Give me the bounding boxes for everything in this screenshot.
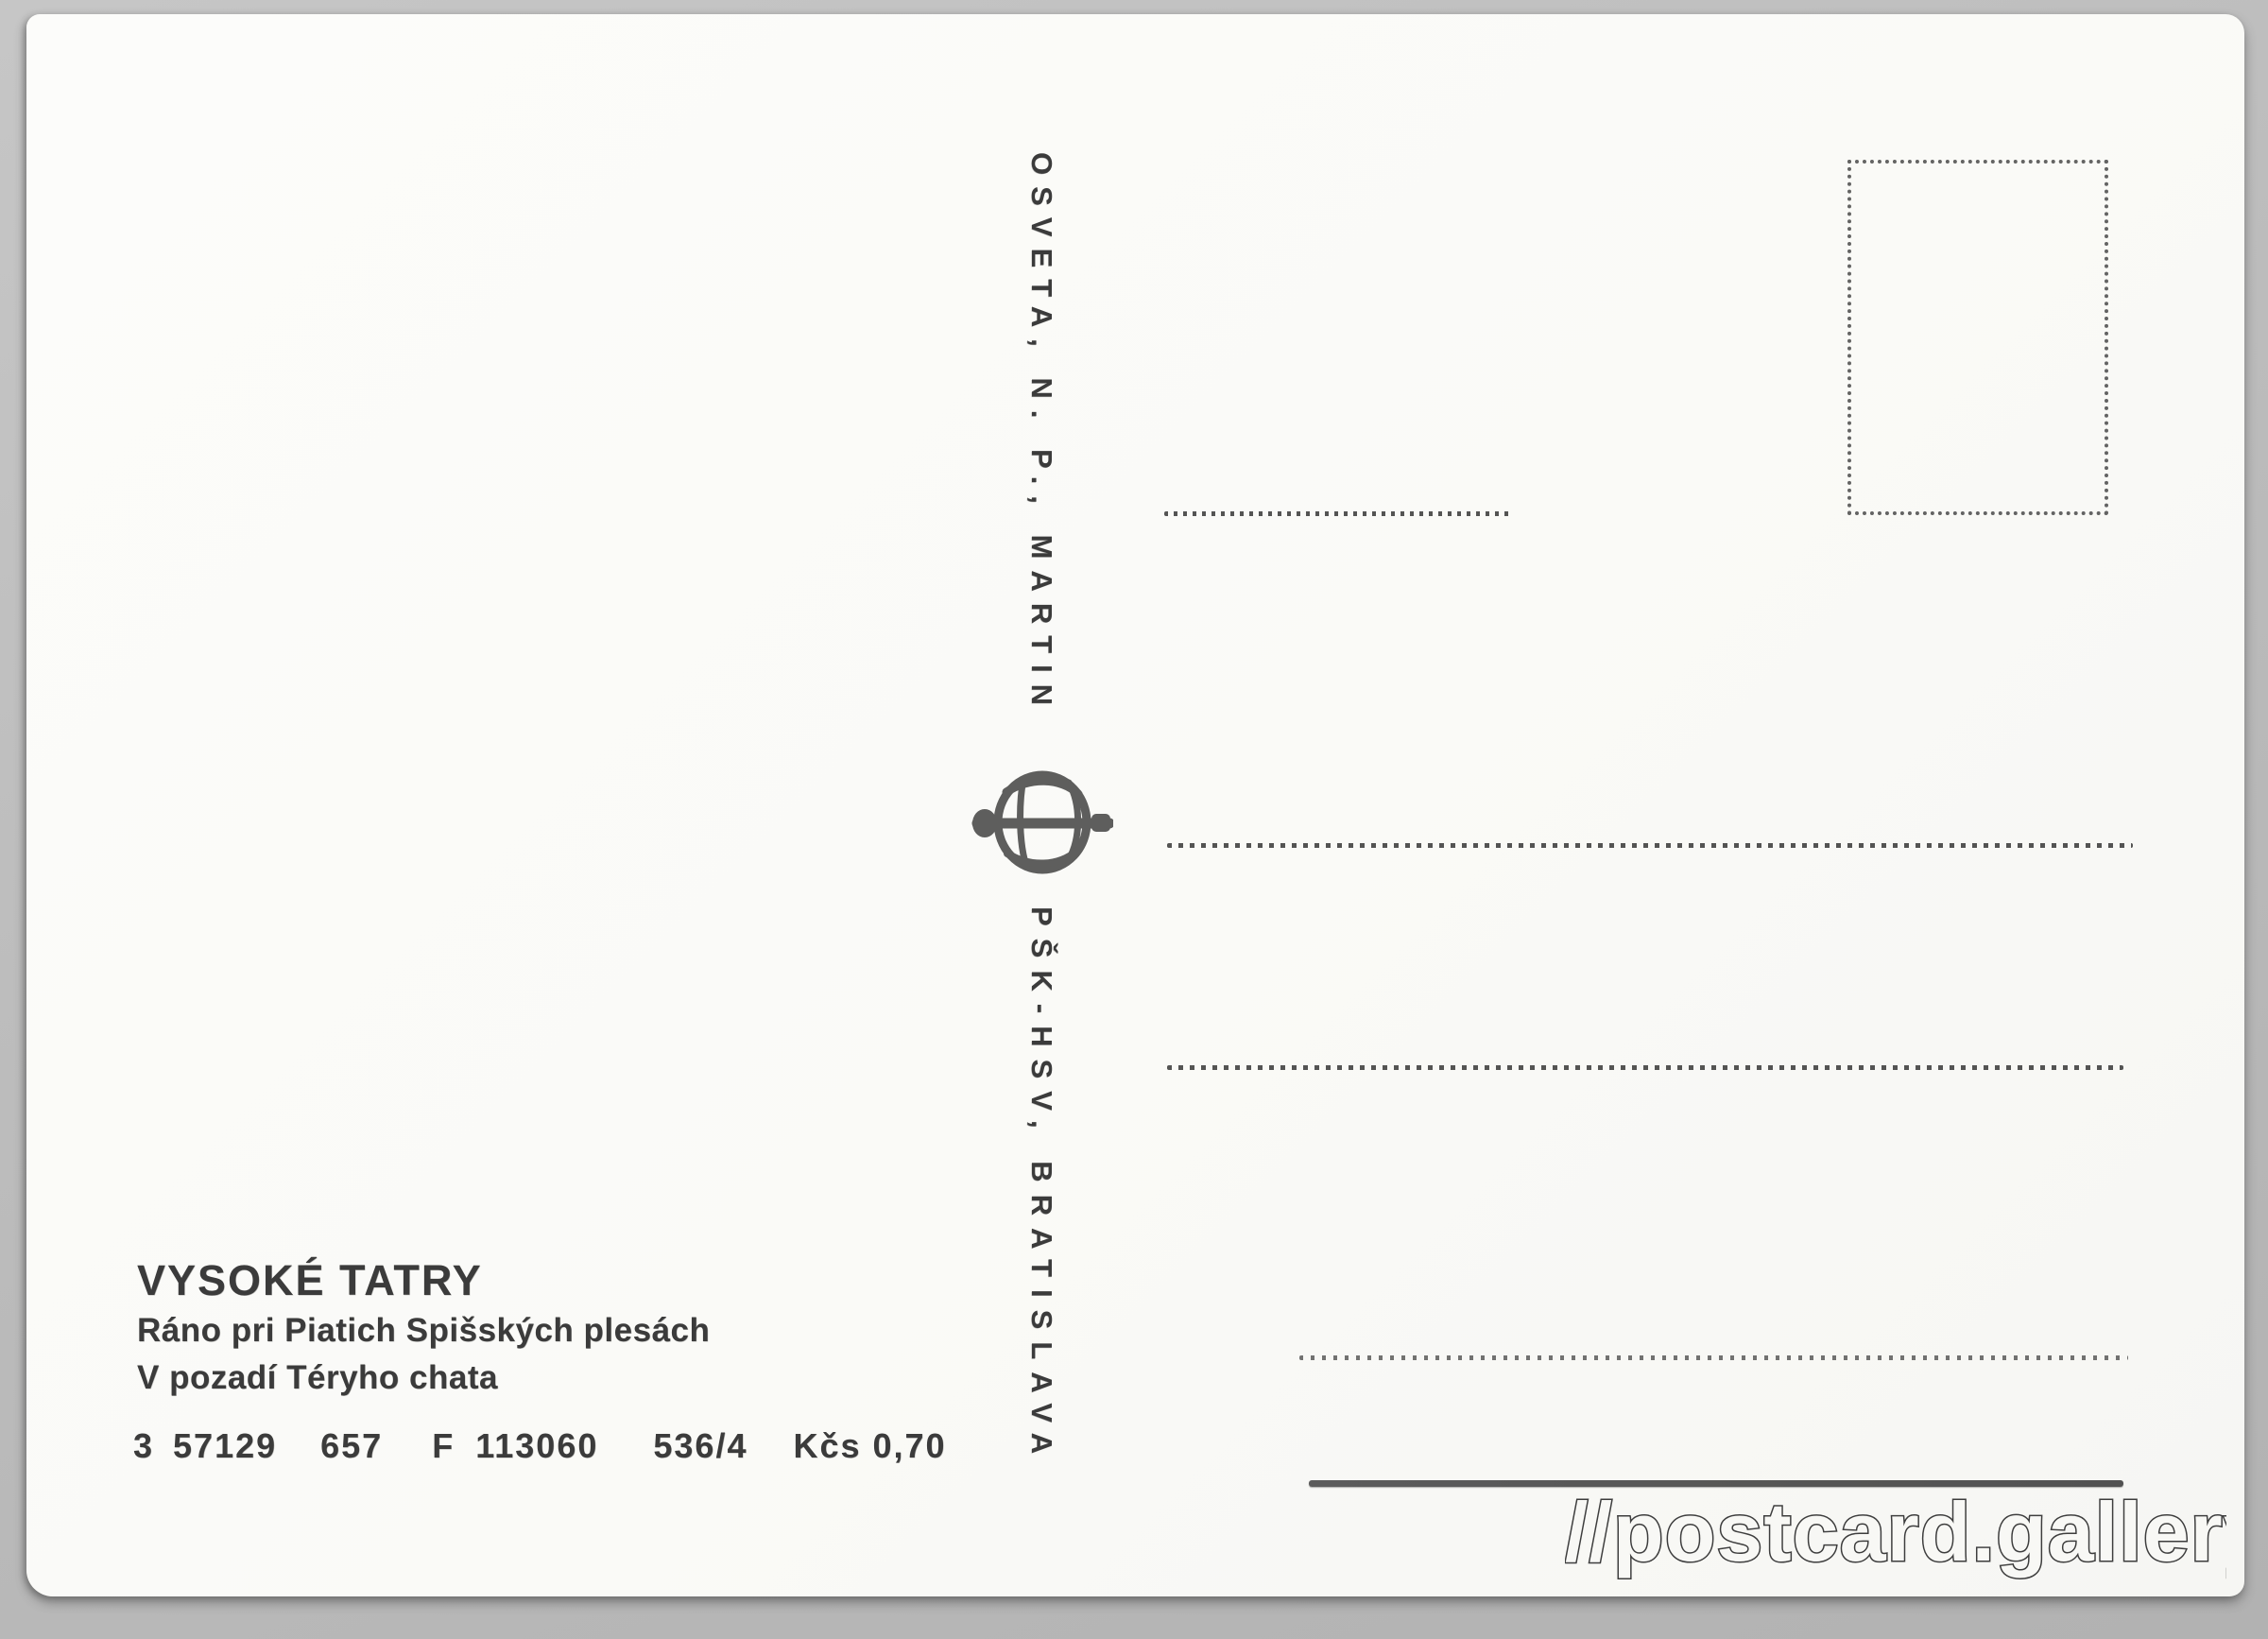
price-label: Kčs 0,70 <box>793 1426 946 1466</box>
postcard-title: VYSOKÉ TATRY <box>137 1254 710 1307</box>
catalog-number: 113060 <box>475 1426 598 1466</box>
caption-block: VYSOKÉ TATRY Ráno pri Piatich Spišských … <box>137 1254 710 1402</box>
watermark-text: //postcard.gallery <box>1565 1485 2226 1579</box>
address-line-1 <box>1164 511 1512 516</box>
postcard-back: OSVETA, N. P., MARTIN PŠK-HSV, BRATISLAV… <box>26 14 2244 1596</box>
postcard-gallery-watermark: //postcard.gallery <box>1565 1468 2226 1593</box>
stamp-box <box>1847 160 2108 515</box>
catalog-row: 3 57129 657 F 113060 536/4 Kčs 0,70 <box>133 1426 947 1466</box>
publisher-imprint-top: OSVETA, N. P., MARTIN <box>1024 152 1058 716</box>
address-line-2 <box>1167 843 2133 848</box>
catalog-number: F <box>432 1426 455 1466</box>
postcard-caption-line2: V pozadí Téryho chata <box>137 1354 710 1402</box>
catalog-number: 57129 <box>173 1426 277 1466</box>
postcard-caption-line1: Ráno pri Piatich Spišských plesách <box>137 1307 710 1354</box>
address-line-3 <box>1167 1065 2123 1070</box>
catalog-number: 657 <box>320 1426 383 1466</box>
address-line-4 <box>1299 1355 2128 1360</box>
publisher-imprint-bottom: PŠK-HSV, BRATISLAVA <box>1024 906 1058 1466</box>
catalog-number: 3 <box>133 1426 154 1466</box>
osveta-globe-book-logo-icon <box>971 770 1113 878</box>
series-number: 536/4 <box>653 1426 747 1466</box>
